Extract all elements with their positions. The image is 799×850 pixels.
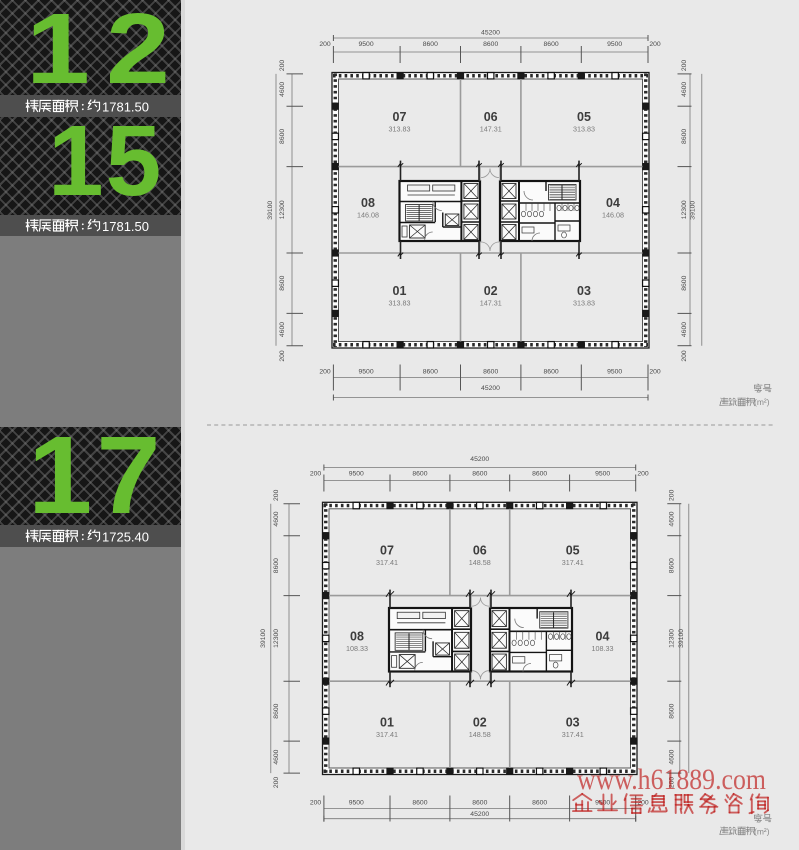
- svg-text:200: 200: [319, 41, 331, 48]
- svg-text:9500: 9500: [349, 471, 364, 478]
- svg-text:12300: 12300: [681, 200, 688, 219]
- svg-text:317.41: 317.41: [376, 730, 398, 739]
- svg-text:08: 08: [361, 196, 375, 210]
- svg-text:45200: 45200: [470, 811, 489, 818]
- svg-text:9500: 9500: [607, 369, 622, 376]
- svg-text:148.58: 148.58: [469, 730, 491, 739]
- svg-text:108.33: 108.33: [592, 644, 614, 653]
- svg-text:39100: 39100: [690, 201, 697, 220]
- svg-text:(m²): (m²): [754, 827, 770, 837]
- svg-text:200: 200: [681, 350, 688, 362]
- svg-text:148.58: 148.58: [469, 558, 491, 567]
- svg-text:317.41: 317.41: [376, 558, 398, 567]
- svg-text:200: 200: [649, 41, 661, 48]
- svg-text:8600: 8600: [423, 369, 438, 376]
- svg-text:45200: 45200: [481, 385, 500, 392]
- svg-text:45200: 45200: [470, 456, 489, 463]
- svg-text:4600: 4600: [279, 82, 286, 97]
- svg-text:12300: 12300: [669, 629, 676, 648]
- svg-text:4600: 4600: [681, 322, 688, 337]
- svg-text:313.83: 313.83: [573, 299, 595, 308]
- svg-text:39100: 39100: [260, 629, 267, 648]
- svg-text:8600: 8600: [681, 129, 688, 144]
- svg-text:04: 04: [596, 630, 610, 644]
- svg-text:8600: 8600: [472, 471, 487, 478]
- svg-text:147.31: 147.31: [480, 299, 502, 308]
- svg-text:8600: 8600: [681, 275, 688, 290]
- svg-text:8600: 8600: [412, 800, 427, 807]
- svg-text:8600: 8600: [472, 800, 487, 807]
- svg-text:06: 06: [484, 110, 498, 124]
- svg-text:200: 200: [649, 369, 661, 376]
- svg-text:8600: 8600: [669, 703, 676, 718]
- svg-text:03: 03: [566, 716, 580, 730]
- svg-text:8600: 8600: [544, 369, 559, 376]
- svg-text:12300: 12300: [273, 629, 280, 648]
- svg-text:8600: 8600: [273, 558, 280, 573]
- svg-text:8600: 8600: [669, 558, 676, 573]
- svg-text:8600: 8600: [532, 471, 547, 478]
- svg-text:108.33: 108.33: [346, 644, 368, 653]
- svg-text:200: 200: [279, 60, 286, 72]
- svg-text:(m²): (m²): [754, 397, 770, 407]
- svg-text:39100: 39100: [267, 201, 274, 220]
- svg-text:200: 200: [279, 350, 286, 362]
- svg-text:4600: 4600: [669, 511, 676, 526]
- svg-text:9500: 9500: [358, 41, 373, 48]
- svg-text:1781.50: 1781.50: [102, 100, 149, 115]
- svg-text:317.41: 317.41: [562, 730, 584, 739]
- svg-text:146.08: 146.08: [357, 211, 379, 220]
- svg-text:313.83: 313.83: [389, 125, 411, 134]
- svg-text:200: 200: [637, 471, 649, 478]
- svg-text:8600: 8600: [544, 41, 559, 48]
- svg-text:05: 05: [577, 110, 591, 124]
- svg-text:4600: 4600: [279, 322, 286, 337]
- svg-text:9500: 9500: [607, 41, 622, 48]
- svg-text:8600: 8600: [423, 41, 438, 48]
- svg-text:1725.40: 1725.40: [102, 530, 149, 545]
- svg-text:200: 200: [669, 489, 676, 501]
- svg-text:9500: 9500: [358, 369, 373, 376]
- svg-text:06: 06: [473, 544, 487, 558]
- svg-text:39100: 39100: [678, 629, 685, 648]
- svg-text:07: 07: [393, 110, 407, 124]
- svg-text:8600: 8600: [279, 129, 286, 144]
- svg-text:02: 02: [473, 716, 487, 730]
- svg-text:200: 200: [310, 800, 322, 807]
- svg-text:03: 03: [577, 284, 591, 298]
- svg-text:200: 200: [319, 369, 331, 376]
- svg-text:8600: 8600: [412, 471, 427, 478]
- svg-text:313.83: 313.83: [389, 299, 411, 308]
- svg-text:4600: 4600: [681, 82, 688, 97]
- svg-text:8600: 8600: [483, 369, 498, 376]
- svg-text:07: 07: [380, 544, 394, 558]
- svg-text:200: 200: [273, 489, 280, 501]
- svg-text:12300: 12300: [279, 200, 286, 219]
- svg-text:8600: 8600: [279, 275, 286, 290]
- svg-text:147.31: 147.31: [480, 125, 502, 134]
- svg-text:317.41: 317.41: [562, 558, 584, 567]
- svg-text:200: 200: [273, 777, 280, 789]
- svg-text:4600: 4600: [273, 511, 280, 526]
- svg-text:02: 02: [484, 284, 498, 298]
- svg-text:9500: 9500: [349, 800, 364, 807]
- svg-text:9500: 9500: [595, 471, 610, 478]
- svg-text:146.08: 146.08: [602, 211, 624, 220]
- svg-text:01: 01: [393, 284, 407, 298]
- svg-text:313.83: 313.83: [573, 125, 595, 134]
- svg-text:8600: 8600: [273, 703, 280, 718]
- svg-text:05: 05: [566, 544, 580, 558]
- svg-text:08: 08: [350, 630, 364, 644]
- svg-text:1781.50: 1781.50: [102, 219, 149, 234]
- svg-text:45200: 45200: [481, 30, 500, 37]
- svg-text:01: 01: [380, 716, 394, 730]
- svg-text:04: 04: [606, 196, 620, 210]
- svg-text:200: 200: [681, 60, 688, 72]
- svg-text:200: 200: [310, 471, 322, 478]
- svg-text:8600: 8600: [532, 800, 547, 807]
- svg-text:4600: 4600: [273, 749, 280, 764]
- svg-text:8600: 8600: [483, 41, 498, 48]
